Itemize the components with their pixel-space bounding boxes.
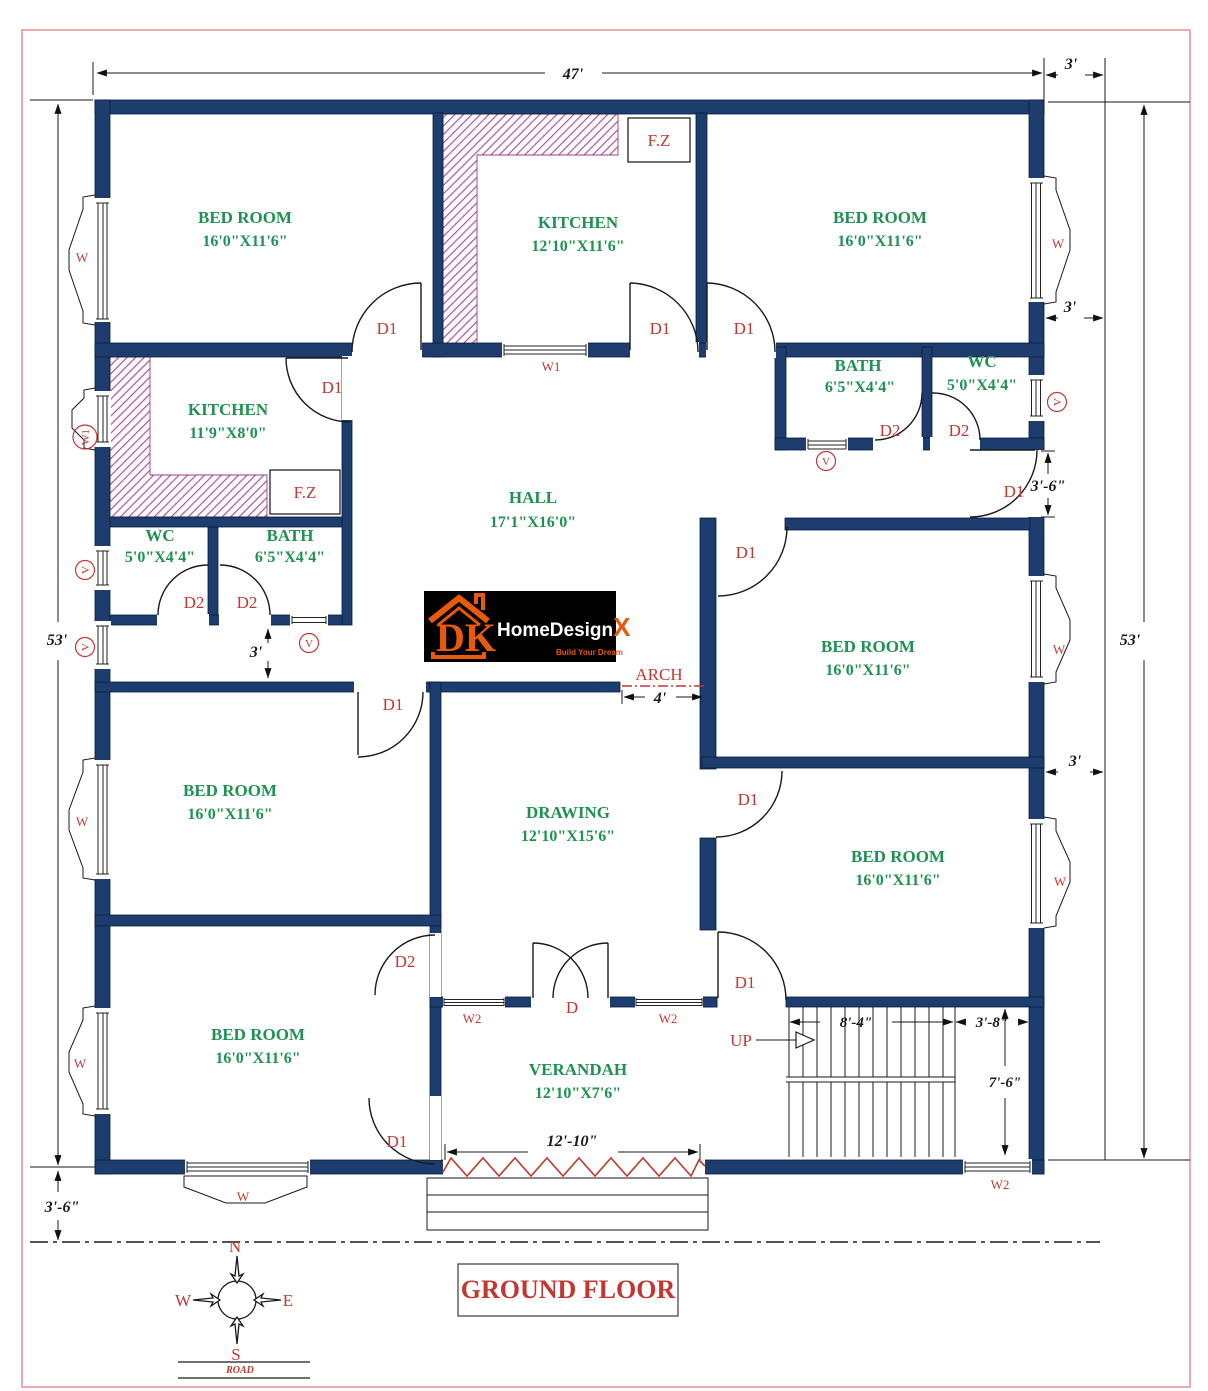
stair-landing-dim: 3'-8" [975,1015,1009,1031]
dim-right-gap-1: 3' [1063,299,1077,316]
room-label-kitchen-top: KITCHEN [538,213,619,232]
fz-label-top: F.Z [648,131,671,150]
door-label-d2: D2 [395,952,416,971]
room-size-bedroom-sw: 16'0"X11'6" [215,1050,300,1067]
logo-tagline: Build Your Dream [556,648,623,657]
room-size-bedroom-mid-right: 16'0"X11'6" [825,662,910,679]
compass: N S W E [175,1237,293,1364]
arch-label: ARCH [635,665,682,684]
window-label-w: W [74,1056,87,1071]
up-arrow: UP [730,1031,814,1050]
window-label-w: W [1052,236,1065,251]
door-label-d1: D1 [650,319,671,338]
room-label-bath-right: BATH [835,356,882,375]
window-label-w2: W2 [463,1011,482,1026]
dim-verandah: 12'-10" [547,1133,598,1150]
svg-text:V: V [305,638,313,650]
door-label-d1: D1 [735,973,756,992]
compass-north: N [229,1237,241,1256]
room-label-kitchen-left: KITCHEN [188,400,269,419]
room-size-bedroom-ne: 16'0"X11'6" [837,233,922,250]
stair-well-dim: 7'-6" [989,1075,1022,1091]
dim-height-right: 53' [1120,632,1141,649]
room-label-bedroom-mid-left: BED ROOM [183,781,277,800]
stair-flight-dim: 8'-4" [840,1015,873,1031]
svg-text:W1: W1 [80,429,92,445]
window-label-w: W [76,250,89,265]
up-label: UP [730,1031,752,1050]
dim-arch: 4' [653,690,667,707]
road-label: ROAD [225,1365,254,1376]
room-size-drawing: 12'10"X15'6" [521,828,615,845]
door-label-double: D [566,998,578,1017]
window-label-w: W [1054,874,1067,889]
room-size-kitchen-top: 12'10"X11'6" [531,238,624,255]
door-label-d1: D1 [738,790,759,809]
compass-south: S [231,1345,240,1364]
logo: DK HomeDesignX.com Build Your Dream [424,591,675,662]
room-size-bedroom-mid-left: 16'0"X11'6" [187,806,272,823]
dim-side-door: 3'-6" [1030,478,1066,495]
room-label-wc-right: WC [967,352,996,371]
window-label-w: W [237,1189,250,1204]
dim-width-main: 47' [562,66,584,83]
kitchen-counters [110,114,618,517]
window-label-w: W [1053,642,1066,657]
fz-label-left: F.Z [294,483,317,502]
door-label-d1: D1 [1004,482,1025,501]
window-sills-right [1044,176,1070,928]
room-size-bedroom-nw: 16'0"X11'6" [202,233,287,250]
room-size-kitchen-left: 11'9"X8'0" [189,425,266,442]
staircase: 8'-4" 3'-8" 7'-6" UP [730,1007,1028,1157]
door-label-d2: D2 [237,593,258,612]
dim-right-gap-2: 3' [1068,753,1082,770]
door-label-d1: D1 [322,378,343,397]
window-label-w2: W2 [659,1011,678,1026]
plan-title: GROUND FLOOR [461,1275,676,1304]
room-label-bedroom-se: BED ROOM [851,847,945,866]
door-label-d1: D1 [734,319,755,338]
door-label-d2: D2 [949,421,970,440]
road: ROAD [178,1362,310,1378]
room-size-hall: 17'1"X16'0" [490,514,576,531]
floor-plan-page: 8'-4" 3'-8" 7'-6" UP [0,0,1208,1391]
dim-height-left: 53' [47,632,68,649]
door-label-d1: D1 [736,543,757,562]
window-label-w1: W1 [542,359,561,374]
room-size-verandah: 12'10"X7'6" [535,1085,621,1102]
compass-west: W [175,1291,192,1310]
svg-text:V: V [80,643,92,651]
room-label-drawing: DRAWING [526,803,610,822]
logo-dk-text: DK [436,615,496,660]
door-label-d1: D1 [377,319,398,338]
room-label-bedroom-nw: BED ROOM [198,208,292,227]
room-size-bath-right: 6'5"X4'4" [825,379,895,396]
svg-text:V: V [822,456,830,468]
room-size-bedroom-se: 16'0"X11'6" [855,872,940,889]
door-label-d1: D1 [387,1132,408,1151]
window-label-w: W [76,814,89,829]
drawing-title: GROUND FLOOR [458,1264,678,1316]
door-label-d2: D2 [880,421,901,440]
svg-text:V: V [1052,398,1064,406]
room-size-bath-left: 6'5"X4'4" [255,549,325,566]
floor-plan-drawing: 8'-4" 3'-8" 7'-6" UP [0,0,1208,1391]
door-label-d1: D1 [383,695,404,714]
freezer-boxes: F.Z F.Z [270,118,690,514]
compass-east: E [283,1291,293,1310]
entry-steps [427,1178,708,1230]
dim-corridor: 3' [249,644,263,661]
room-label-bedroom-ne: BED ROOM [833,208,927,227]
room-label-bedroom-sw: BED ROOM [211,1025,305,1044]
room-size-wc-left: 5'0"X4'4" [125,549,195,566]
window-label-w2: W2 [991,1177,1010,1192]
dim-setback-bottom: 3'-6" [44,1199,80,1216]
door-label-d2: D2 [184,593,205,612]
dim-offset-right: 3' [1064,56,1078,73]
room-label-verandah: VERANDAH [529,1060,627,1079]
room-label-bath-left: BATH [267,526,314,545]
window-label-w1-circled: W1 [73,425,97,449]
room-label-bedroom-mid-right: BED ROOM [821,637,915,656]
room-size-wc-right: 5'0"X4'4" [947,377,1017,394]
svg-text:V: V [80,566,92,574]
room-label-wc-left: WC [145,526,174,545]
room-label-hall: HALL [509,488,557,507]
